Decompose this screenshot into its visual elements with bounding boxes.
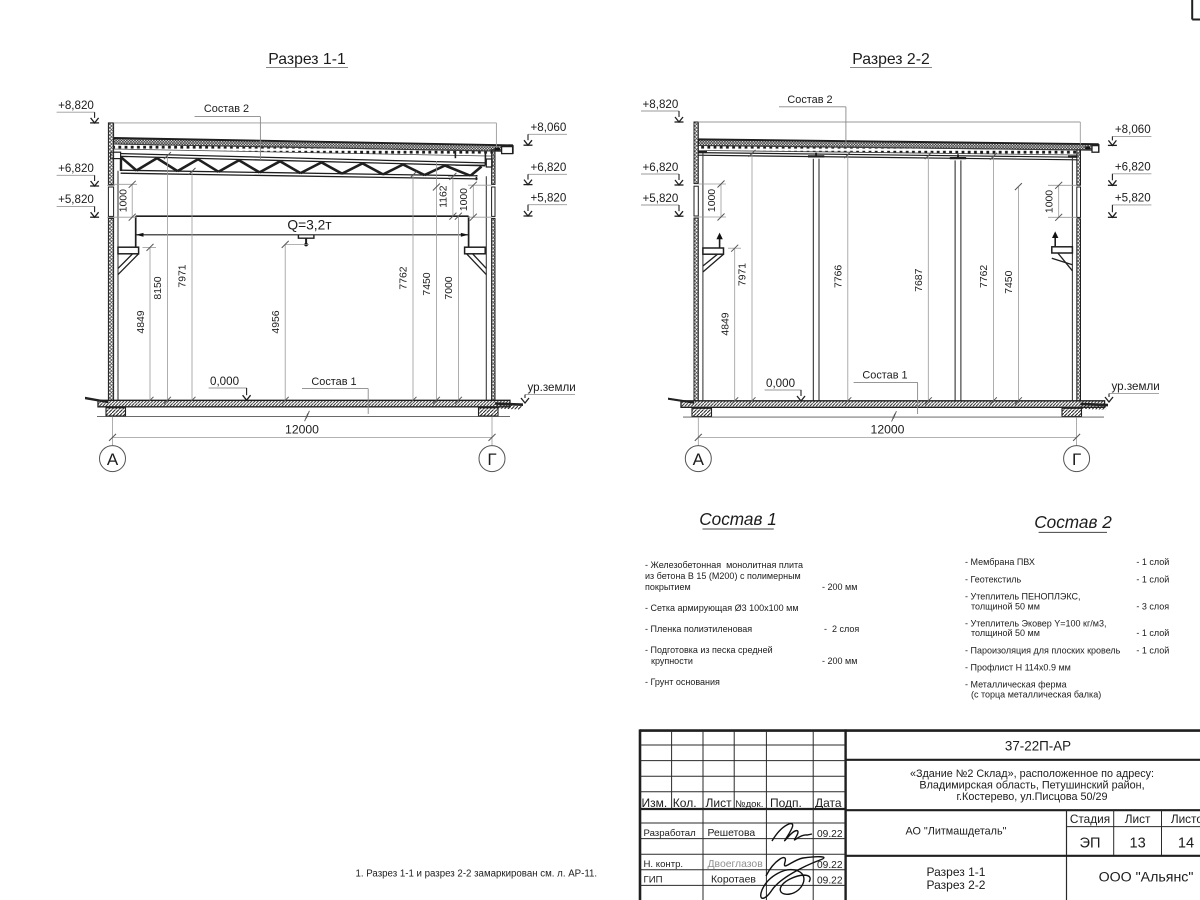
- svg-text:09.22: 09.22: [817, 860, 843, 871]
- svg-text:№док.: №док.: [735, 799, 763, 810]
- svg-text:1000: 1000: [1044, 190, 1055, 213]
- svg-text:ЭП: ЭП: [1080, 836, 1101, 852]
- svg-text:ООО "Альянс": ООО "Альянс": [1099, 870, 1194, 886]
- svg-text:+5,820: +5,820: [643, 192, 679, 205]
- svg-text:Состав 1: Состав 1: [311, 376, 356, 388]
- svg-text:Стадия: Стадия: [1070, 812, 1110, 826]
- svg-text:12000: 12000: [871, 423, 905, 437]
- svg-text:- Подготовка из песка средней: - Подготовка из песка средней: [645, 645, 773, 655]
- svg-text:1000: 1000: [707, 189, 718, 212]
- svg-text:1. Разрез 1-1 и разрез 2-2 зам: 1. Разрез 1-1 и разрез 2-2 замаркирован …: [356, 869, 598, 880]
- svg-text:13: 13: [1129, 836, 1145, 852]
- svg-text:+8,820: +8,820: [58, 99, 94, 112]
- svg-text:- Утеплитель ПЕНОПЛЭКС,: - Утеплитель ПЕНОПЛЭКС,: [965, 592, 1081, 602]
- svg-text:- 3 слоя: - 3 слоя: [1136, 601, 1169, 611]
- svg-text:7000: 7000: [444, 276, 455, 299]
- svg-text:09.22: 09.22: [817, 875, 843, 886]
- svg-text:1162: 1162: [439, 185, 450, 208]
- svg-text:7450: 7450: [422, 272, 433, 295]
- svg-text:1000: 1000: [118, 189, 129, 212]
- svg-text:+6,820: +6,820: [1115, 161, 1151, 174]
- svg-text:1000: 1000: [459, 188, 470, 211]
- svg-text:(с торца металлическая балка): (с торца металлическая балка): [971, 690, 1101, 700]
- svg-text:Изм.: Изм.: [642, 796, 668, 810]
- svg-text:- Пароизоляция для плоских кро: - Пароизоляция для плоских кровель: [965, 646, 1121, 656]
- svg-text:+6,820: +6,820: [58, 162, 94, 175]
- svg-text:- Мембрана ПВХ: - Мембрана ПВХ: [965, 557, 1035, 567]
- svg-text:Кол.: Кол.: [673, 796, 697, 810]
- svg-text:ур.земли: ур.земли: [528, 381, 576, 394]
- svg-text:- Сетка армирующая Ø3 100х100: - Сетка армирующая Ø3 100х100 мм: [645, 603, 799, 613]
- svg-text:7971: 7971: [738, 263, 749, 286]
- svg-text:- 200 мм: - 200 мм: [822, 582, 857, 592]
- svg-text:- 1 слой: - 1 слой: [1136, 628, 1169, 638]
- svg-text:Разрез 1-1: Разрез 1-1: [268, 51, 346, 68]
- svg-text:+8,060: +8,060: [531, 121, 567, 134]
- svg-text:+5,820: +5,820: [1115, 192, 1151, 205]
- svg-text:7450: 7450: [1004, 270, 1015, 293]
- svg-text:Н. контр.: Н. контр.: [644, 859, 684, 870]
- svg-text:- Профлист Н 114х0.9 мм: - Профлист Н 114х0.9 мм: [965, 663, 1071, 673]
- svg-text:Дата: Дата: [815, 796, 842, 810]
- svg-text:- Пленка полиэтиленовая: - Пленка полиэтиленовая: [645, 624, 752, 634]
- svg-text:12000: 12000: [285, 423, 319, 437]
- svg-text:толщиной 50 мм: толщиной 50 мм: [971, 601, 1040, 611]
- svg-text:- 200 мм: - 200 мм: [822, 656, 857, 666]
- svg-text:+5,820: +5,820: [58, 193, 94, 206]
- svg-text:37-22П-АР: 37-22П-АР: [1005, 739, 1071, 754]
- svg-text:ГИП: ГИП: [644, 875, 663, 886]
- svg-text:+8,820: +8,820: [643, 98, 679, 111]
- svg-text:7762: 7762: [399, 266, 410, 289]
- svg-text:0,000: 0,000: [766, 377, 795, 390]
- svg-text:+6,820: +6,820: [531, 161, 567, 174]
- svg-text:- Утеплитель Эковер Y=100 кг/м: - Утеплитель Эковер Y=100 кг/м3,: [965, 619, 1106, 629]
- svg-text:7762: 7762: [979, 265, 990, 288]
- svg-text:Листов: Листов: [1171, 812, 1200, 826]
- svg-text:- Металлическая ферма: - Металлическая ферма: [965, 680, 1067, 690]
- svg-text:- 1 слой: - 1 слой: [1136, 557, 1169, 567]
- svg-text:7766: 7766: [834, 265, 845, 288]
- svg-text:АО "Литмашдеталь": АО "Литмашдеталь": [906, 826, 1007, 838]
- svg-text:+6,820: +6,820: [643, 161, 679, 174]
- svg-text:г.Костерево, ул.Писцова 50/29: г.Костерево, ул.Писцова 50/29: [956, 791, 1107, 803]
- svg-text:Лист: Лист: [706, 796, 733, 810]
- svg-text:Разрез 2-2: Разрез 2-2: [852, 51, 930, 68]
- svg-text:Владимирская область, Петушинс: Владимирская область, Петушинский район,: [919, 780, 1144, 792]
- svg-text:- Геотекстиль: - Геотекстиль: [965, 574, 1022, 584]
- svg-text:«Здание №2 Склад», расположенн: «Здание №2 Склад», расположенное по адре…: [910, 768, 1154, 780]
- svg-text:толщиной 50 мм: толщиной 50 мм: [971, 628, 1040, 638]
- svg-text:А: А: [107, 450, 119, 469]
- svg-text:Q=3,2т: Q=3,2т: [287, 218, 332, 233]
- svg-text:Коротаев: Коротаев: [711, 875, 756, 886]
- svg-text:из бетона В 15 (М200) с полиме: из бетона В 15 (М200) с полимерным: [645, 571, 801, 581]
- svg-text:- Железобетонная монолитная п: - Железобетонная монолитная плита: [645, 560, 803, 570]
- svg-text:Состав 2: Состав 2: [1034, 512, 1112, 532]
- svg-text:покрытием: покрытием: [645, 582, 691, 592]
- svg-text:А: А: [693, 450, 705, 469]
- svg-text:- 1 слой: - 1 слой: [1136, 646, 1169, 656]
- svg-text:7687: 7687: [914, 268, 925, 291]
- svg-text:7971: 7971: [178, 264, 189, 287]
- svg-text:Г: Г: [487, 450, 496, 469]
- svg-text:Двоеглазов: Двоеглазов: [708, 859, 764, 870]
- svg-text:- 1 слой: - 1 слой: [1136, 574, 1169, 584]
- svg-text:крупности: крупности: [651, 656, 693, 666]
- svg-text:Состав 1: Состав 1: [862, 370, 907, 382]
- svg-text:- 2 слоя: - 2 слоя: [824, 624, 859, 634]
- svg-text:Решетова: Решетова: [708, 828, 756, 839]
- svg-text:8150: 8150: [153, 276, 164, 299]
- svg-text:+8,060: +8,060: [1115, 123, 1151, 136]
- svg-text:Состав 1: Состав 1: [699, 509, 777, 529]
- svg-text:Состав 2: Состав 2: [787, 94, 832, 106]
- svg-text:+5,820: +5,820: [531, 192, 567, 205]
- svg-text:4849: 4849: [136, 310, 147, 333]
- svg-text:Разрез 1-1: Разрез 1-1: [927, 865, 986, 879]
- svg-text:09.22: 09.22: [817, 829, 843, 840]
- svg-text:Разработал: Разработал: [644, 828, 696, 839]
- svg-text:14: 14: [1178, 836, 1194, 852]
- svg-text:Г: Г: [1072, 450, 1081, 469]
- svg-text:ур.земли: ур.земли: [1112, 380, 1160, 393]
- svg-text:Разрез 2-2: Разрез 2-2: [927, 878, 986, 892]
- svg-text:4849: 4849: [720, 312, 731, 335]
- svg-text:- Грунт основания: - Грунт основания: [645, 677, 720, 687]
- svg-text:Состав 2: Состав 2: [204, 103, 249, 115]
- svg-text:Подп.: Подп.: [770, 796, 802, 810]
- svg-text:4956: 4956: [271, 310, 282, 333]
- svg-text:0,000: 0,000: [210, 375, 239, 388]
- svg-text:Лист: Лист: [1125, 812, 1151, 826]
